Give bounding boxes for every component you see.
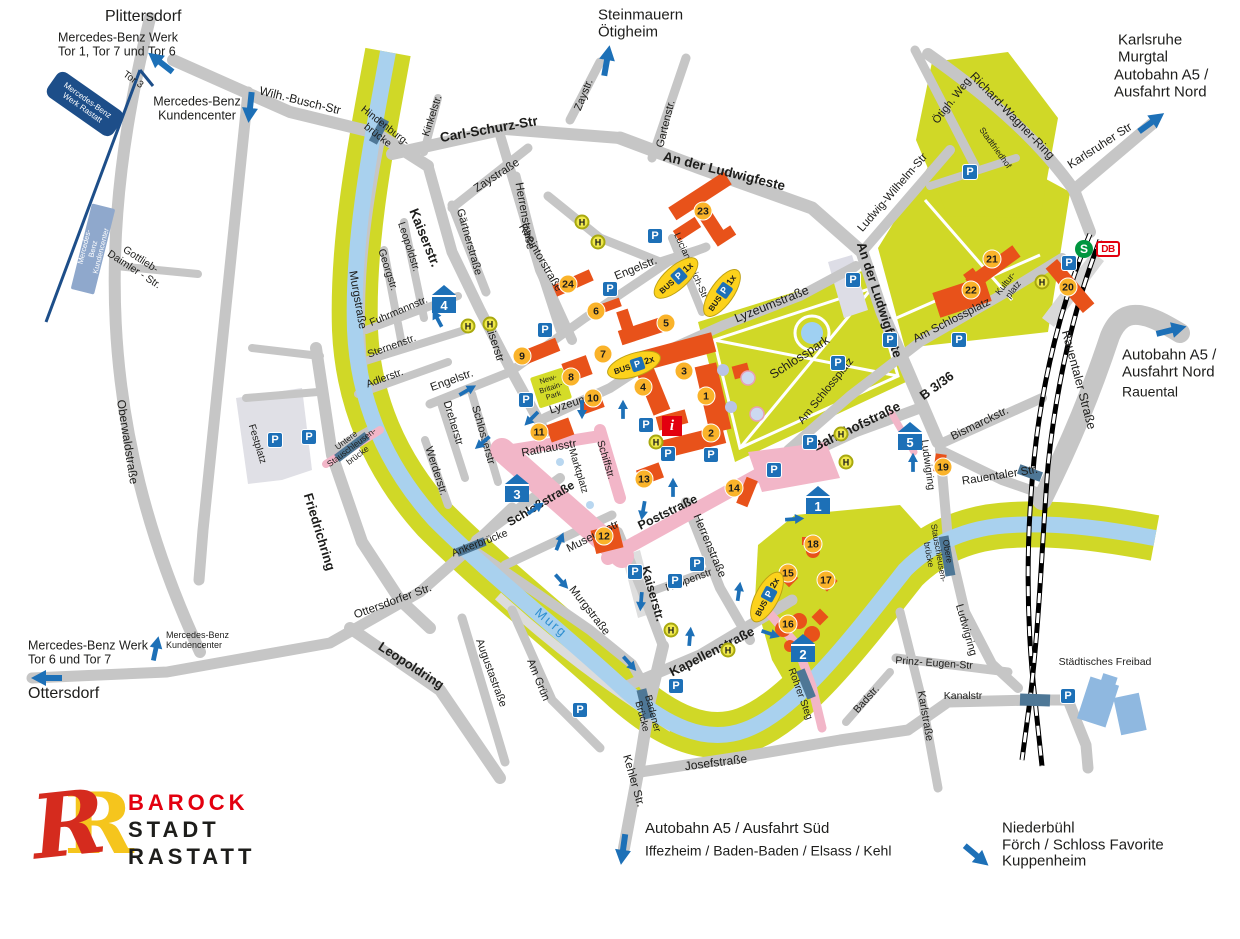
- street-label: Carl-Schurz-Str: [439, 114, 539, 146]
- poi-marker-3: 3: [675, 362, 694, 381]
- poi-marker-6: 6: [587, 302, 606, 321]
- poi-marker-19: 19: [934, 458, 953, 477]
- destination-label: Niederbühl Förch / Schloss Favorite Kupp…: [1002, 820, 1164, 870]
- direction-arrow-icon: [731, 580, 747, 603]
- street-label: Leopoldring: [376, 640, 447, 693]
- poi-marker-12: 12: [595, 527, 614, 546]
- bridge-label: Untere Stauschleusen- brücke: [320, 419, 384, 477]
- bus-stop-icon: H: [461, 319, 476, 334]
- street-label: Georgstr.: [375, 248, 399, 293]
- parking-icon: P: [647, 228, 663, 244]
- poi-marker-5: 5: [657, 314, 676, 333]
- area-label: Schlosspark: [768, 334, 833, 383]
- bridge-label: Obere Stauschleusen- brücke: [919, 522, 957, 585]
- poi-marker-1: 1: [697, 387, 716, 406]
- bus-stop-icon: H: [664, 623, 679, 638]
- destination-label: Iffezheim / Baden-Baden / Elsass / Kehl: [645, 843, 891, 858]
- poi-marker-7: 7: [594, 345, 613, 364]
- logo-line-barock: BAROCK: [128, 790, 255, 817]
- direction-arrow-icon: [610, 832, 637, 869]
- parking-icon: P: [962, 164, 978, 180]
- street-label: Friedrichring: [300, 492, 337, 573]
- area-label: Stadtfriedhof: [977, 126, 1013, 170]
- parking-icon: P: [1060, 688, 1076, 704]
- poi-marker-8: 8: [562, 368, 581, 387]
- parking-garage-icon-1: 1: [805, 485, 831, 515]
- bus-parking-icon: BUSP2x: [604, 345, 665, 385]
- destination-label: Autobahn A5 / Ausfahrt Nord: [1122, 348, 1216, 381]
- map-labeled-box: Mercedes-Benz Werk Rastatt: [44, 69, 127, 139]
- street-label: Ludwig-Wilhelm-Str: [856, 151, 931, 235]
- parking-icon: P: [951, 332, 967, 348]
- street-label: An der Ludwigfeste: [661, 150, 786, 195]
- street-label: Gartenstr.: [654, 99, 677, 149]
- street-label: Murgstraße: [566, 584, 612, 638]
- parking-garage-icon-2: 2: [790, 633, 816, 663]
- box-label: Mercedes-Benz Werk Rastatt: [57, 80, 113, 127]
- direction-arrow-icon: [237, 90, 262, 126]
- street-label: Sternenstr.: [366, 333, 418, 361]
- parking-icon: P: [267, 432, 283, 448]
- bus-label: BUS: [753, 598, 769, 617]
- direction-arrow-icon: [957, 837, 997, 876]
- street-label: Gärtnerstraße: [454, 207, 484, 276]
- destination-label: Mercedes-Benz Kundencenter: [153, 95, 241, 123]
- bus-stop-icon: H: [721, 643, 736, 658]
- street-label: Fuhrmannstr.: [368, 295, 429, 330]
- street-label: Rheintorstraße: [516, 222, 565, 294]
- direction-arrow-icon: [593, 41, 621, 78]
- street-label: Gottlieb- Daimler - Str.: [105, 239, 169, 292]
- street-label: Am Grün: [524, 657, 552, 702]
- destination-label: Steinmauern Ötigheim: [598, 8, 683, 41]
- direction-arrow-icon: [29, 667, 63, 689]
- direction-arrow-icon: [666, 476, 680, 497]
- poi-marker-18: 18: [804, 535, 823, 554]
- street-label: Bismarckstr.: [949, 405, 1011, 444]
- street-label: Prinz- Eugen-Str: [895, 656, 973, 673]
- parking-icon: P: [667, 573, 683, 589]
- svg-text:1: 1: [814, 499, 821, 514]
- street-label: B 3/36: [917, 369, 956, 403]
- svg-text:2: 2: [799, 647, 806, 662]
- street-label: Rauentaler Straße: [1058, 329, 1098, 431]
- parking-icon: P: [703, 447, 719, 463]
- street-label: Richard-Wagner-Ring: [967, 70, 1057, 162]
- street-label: Josefstraße: [684, 753, 748, 774]
- street-label: Kapellenstraße: [667, 624, 757, 679]
- street-label: Kehler Str.: [620, 753, 647, 808]
- street-label: Am Schlossplatz: [796, 356, 857, 427]
- parking-icon: P: [766, 462, 782, 478]
- direction-arrow-icon: [575, 399, 589, 420]
- bus-label: BUS: [706, 294, 723, 313]
- poi-marker-14: 14: [725, 479, 744, 498]
- street-label: Werderstr.: [422, 445, 449, 497]
- area-label: Städtisches Freibad: [1059, 657, 1152, 669]
- area-label: Kultur- platz: [994, 270, 1026, 303]
- parking-icon: P: [572, 702, 588, 718]
- direction-arrow-icon: [1132, 103, 1172, 141]
- parking-icon: P: [830, 355, 846, 371]
- bridge-label: Ankerbrücke: [450, 528, 509, 560]
- destination-label: Rauental: [1122, 384, 1178, 399]
- poi-marker-23: 23: [694, 202, 713, 221]
- parking-icon: P: [301, 429, 317, 445]
- rastatt-city-map: PlittersdorfMercedes-Benz Werk Tor 1, To…: [0, 0, 1240, 939]
- street-label: Engelstr.: [613, 255, 659, 283]
- parking-icon: P: [660, 446, 676, 462]
- bus-label: BUS: [613, 362, 632, 376]
- street-label: Oberwaldstraße: [114, 399, 140, 485]
- poi-marker-2: 2: [702, 424, 721, 443]
- direction-arrow-icon: [618, 652, 642, 677]
- parking-icon: P: [802, 434, 818, 450]
- poi-marker-13: 13: [635, 470, 654, 489]
- bridge-label: Badener Brücke: [631, 694, 662, 736]
- parking-icon: P: [1061, 255, 1077, 271]
- svg-text:3: 3: [513, 487, 520, 502]
- direction-arrow-icon: [633, 591, 648, 613]
- street-label: Rauentaler Str.: [961, 464, 1039, 488]
- bridge-label: Hindenburg- brücke: [351, 104, 411, 158]
- poi-marker-4: 4: [634, 378, 653, 397]
- bus-stop-icon: H: [1035, 275, 1050, 290]
- bus-stop-icon: H: [483, 317, 498, 332]
- destination-label: Mercedes-Benz Werk Tor 6 und Tor 7: [28, 639, 148, 667]
- parking-icon: P: [882, 332, 898, 348]
- street-label: Lyzeumstraße: [733, 284, 811, 326]
- city-logo: R R BAROCK STADT RASTATT: [36, 788, 296, 898]
- street-label: Wilh.-Busch-Str: [258, 85, 342, 118]
- svg-text:5: 5: [906, 435, 913, 450]
- street-label: Schiffstr.: [594, 439, 617, 481]
- direction-arrow-icon: [1153, 315, 1191, 345]
- street-label: Karlstraße: [915, 690, 936, 742]
- street-label: Badstr.: [852, 684, 882, 716]
- logo-line-stadt: STADT: [128, 817, 255, 844]
- poi-marker-20: 20: [1059, 278, 1078, 297]
- parking-icon: P: [638, 417, 654, 433]
- poi-marker-21: 21: [983, 250, 1002, 269]
- svg-text:4: 4: [440, 298, 448, 313]
- direction-arrow-icon: [616, 398, 630, 419]
- parking-garage-icon-3: 3: [504, 473, 530, 503]
- logo-text: BAROCK STADT RASTATT: [128, 790, 255, 870]
- destination-label: Autobahn A5 / Ausfahrt Nord: [1114, 68, 1208, 101]
- street-label: Ottersdorfer Str.: [352, 582, 433, 622]
- bridge-label: Rohrer Steg: [786, 667, 815, 721]
- parking-icon: P: [518, 392, 534, 408]
- direction-arrow-icon: [682, 625, 697, 647]
- logo-line-rastatt: RASTATT: [128, 844, 255, 871]
- street-label: Ludwigring: [953, 603, 979, 657]
- destination-label: Mercedes-Benz Kundencenter: [166, 631, 229, 651]
- street-label: Bahnhofstraße: [811, 399, 903, 454]
- parking-garage-icon-5: 5: [897, 421, 923, 451]
- logo-emblem-icon: R R: [36, 788, 124, 880]
- street-label: Ötigh. Weg: [930, 76, 973, 127]
- area-label: Festplatz: [246, 423, 268, 465]
- bus-stop-icon: H: [575, 215, 590, 230]
- street-label: Murgstraße: [346, 270, 369, 330]
- bus-parking-count: 2x: [643, 354, 656, 367]
- poi-marker-17: 17: [817, 571, 836, 590]
- direction-arrow-icon: [906, 451, 920, 472]
- box-label: Mercedes-Benz Kundencenter: [75, 223, 111, 275]
- street-label: Augustastraße: [473, 637, 509, 708]
- bus-stop-icon: H: [591, 235, 606, 250]
- destination-label: Autobahn A5 / Ausfahrt Süd: [645, 821, 829, 838]
- street-label: Tor 3: [121, 69, 146, 91]
- water-label: Murg: [532, 605, 570, 640]
- sbahn-icon: S: [1075, 240, 1093, 258]
- parking-icon: P: [602, 281, 618, 297]
- poi-marker-22: 22: [962, 281, 981, 300]
- parking-icon: P: [845, 272, 861, 288]
- bus-stop-icon: H: [839, 455, 854, 470]
- destination-label: Karlsruhe Murgtal: [1118, 33, 1182, 66]
- parking-icon: P: [689, 556, 705, 572]
- street-label: Kanalstr: [944, 691, 983, 703]
- logo-emblem-red-r: R: [27, 768, 111, 879]
- direction-arrow-icon: [784, 511, 806, 526]
- street-label: Zaystr.: [572, 77, 596, 112]
- parking-icon: P: [627, 564, 643, 580]
- tourist-info-icon: i: [662, 416, 682, 436]
- destination-label: Plittersdorf: [105, 8, 181, 26]
- bus-stop-icon: H: [834, 427, 849, 442]
- db-railway-icon: DB: [1096, 241, 1120, 257]
- bus-stop-icon: H: [649, 435, 664, 450]
- street-label: Karlsruher Str: [1065, 120, 1134, 171]
- street-label: Dreherstr: [441, 399, 466, 446]
- street-label: Adlerstr.: [365, 367, 405, 391]
- parking-icon: P: [668, 678, 684, 694]
- poi-marker-24: 24: [559, 275, 578, 294]
- map-labeled-box: Mercedes-Benz Kundencenter: [71, 203, 116, 294]
- parking-icon: P: [537, 322, 553, 338]
- poi-marker-9: 9: [513, 347, 532, 366]
